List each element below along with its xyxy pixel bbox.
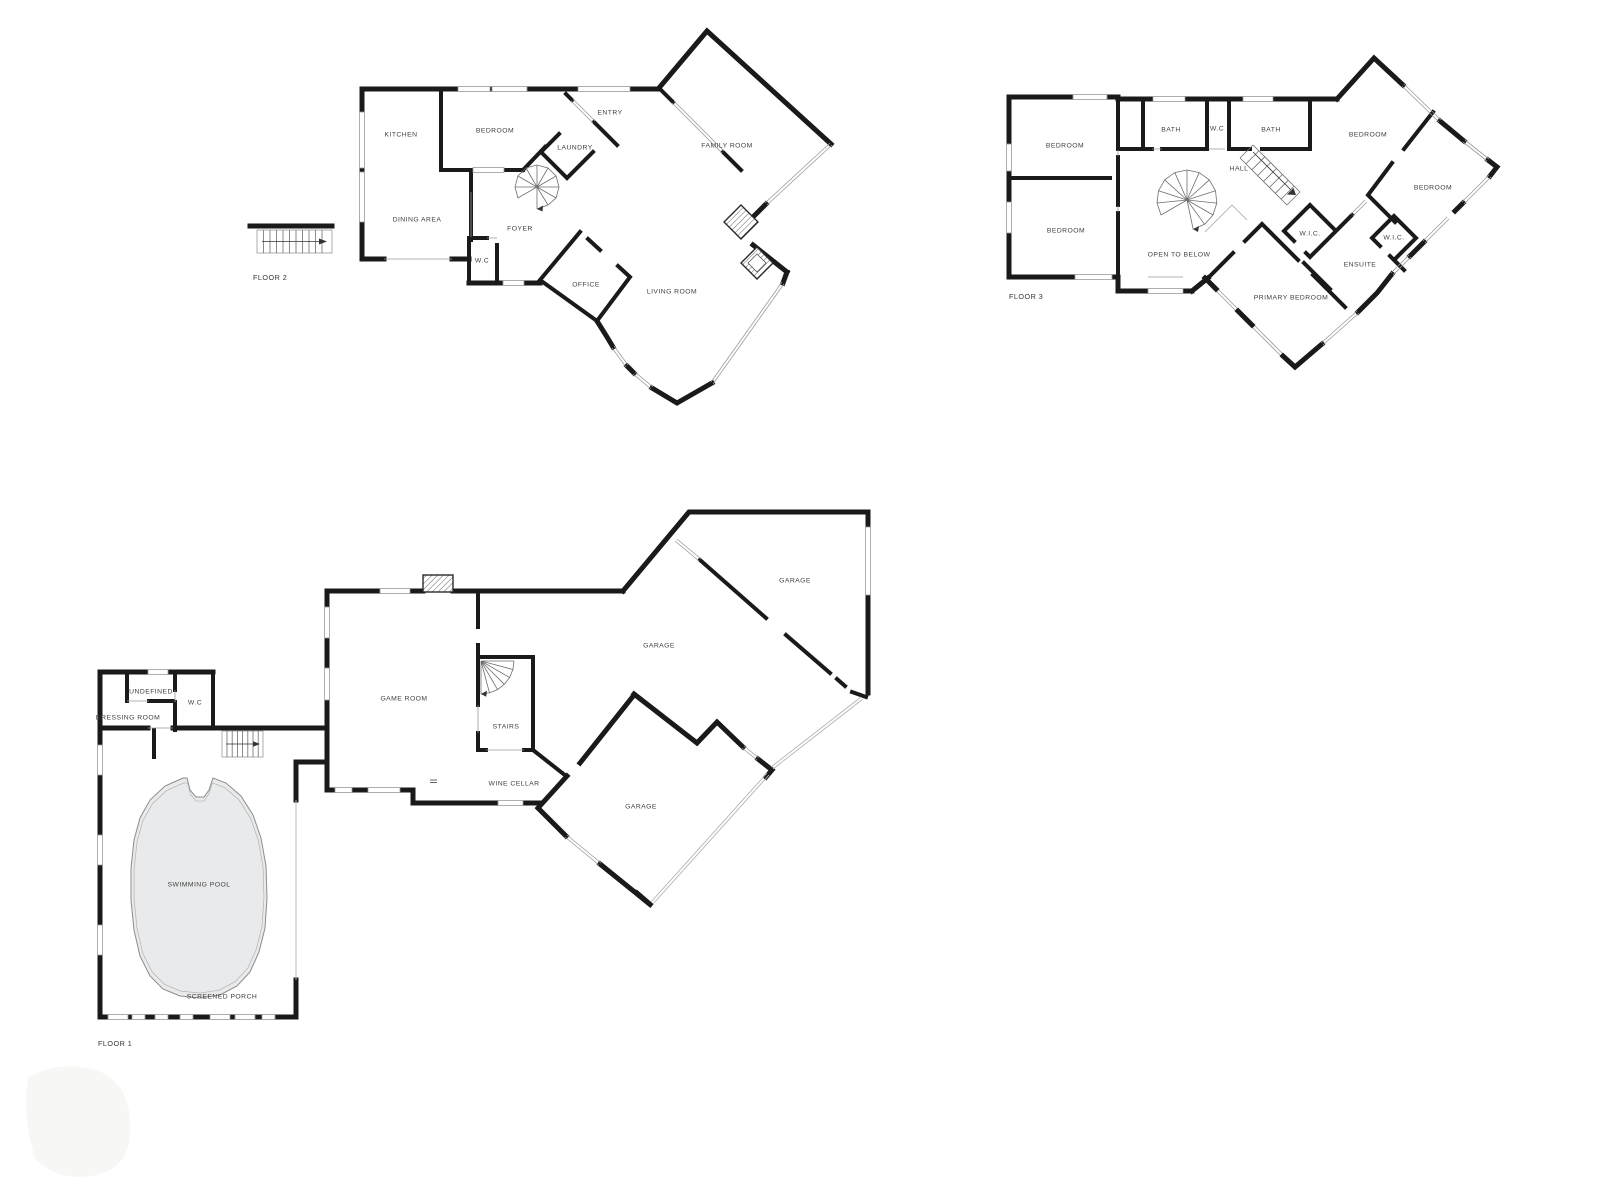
room-label-living-room: LIVING ROOM xyxy=(647,288,697,295)
room-label-bath-right: BATH xyxy=(1261,126,1280,133)
spiral-stair-f3-icon xyxy=(1157,170,1217,229)
floor-3-label: FLOOR 3 xyxy=(1009,292,1043,301)
room-label-bedroom-nw: BEDROOM xyxy=(1046,142,1084,149)
room-label-wc-f2: W.C xyxy=(475,257,489,264)
room-label-open-to-below: OPEN TO BELOW xyxy=(1148,251,1211,258)
room-label-dressing-room: DRESSING ROOM xyxy=(96,714,160,721)
room-label-ensuite: ENSUITE xyxy=(1344,261,1377,268)
room-label-bedroom-sw: BEDROOM xyxy=(1047,227,1085,234)
room-label-family-room: FAMILY ROOM xyxy=(701,142,753,149)
room-label-bedroom-ne: BEDROOM xyxy=(1349,131,1387,138)
floor-2-plan: KITCHEN BEDROOM ENTRY LAUNDRY FAMILY ROO… xyxy=(250,31,832,403)
room-label-office: OFFICE xyxy=(572,281,600,288)
room-label-primary-bedroom: PRIMARY BEDROOM xyxy=(1254,294,1328,301)
floor-3-plan: BEDROOM BATH W.C BATH BEDROOM HALL BEDRO… xyxy=(1007,58,1498,367)
hall-stair-icon xyxy=(1240,145,1300,205)
room-label-garage-center: GARAGE xyxy=(643,642,675,649)
room-label-laundry: LAUNDRY xyxy=(557,144,593,151)
floor-2-label: FLOOR 2 xyxy=(253,273,287,282)
room-label-wic-right: W.I.C. xyxy=(1383,234,1404,241)
room-label-garage-s: GARAGE xyxy=(625,803,657,810)
room-label-kitchen: KITCHEN xyxy=(385,131,418,138)
room-label-entry: ENTRY xyxy=(597,109,622,116)
room-label-garage-ne: GARAGE xyxy=(779,577,811,584)
floor-1-plan: UNDEFINED W.C DRESSING ROOM GAME ROOM ST… xyxy=(96,512,871,1048)
room-label-stairs: STAIRS xyxy=(493,723,520,730)
room-label-bedroom-e: BEDROOM xyxy=(1414,184,1452,191)
room-label-dining-area: DINING AREA xyxy=(393,216,442,223)
room-label-foyer: FOYER xyxy=(507,225,533,232)
room-label-wic-left: W.I.C. xyxy=(1299,230,1320,237)
stairs-fan-icon xyxy=(481,661,514,694)
watermark xyxy=(26,1066,130,1177)
room-label-wc-f3: W.C xyxy=(1210,125,1224,132)
room-label-bedroom-f2: BEDROOM xyxy=(476,127,514,134)
room-label-wine-cellar: WINE CELLAR xyxy=(488,780,539,787)
room-label-swimming-pool: SWIMMING POOL xyxy=(168,881,231,888)
room-label-wc-f1: W.C xyxy=(188,699,202,706)
floor-1-label: FLOOR 1 xyxy=(98,1039,132,1048)
room-label-hall: HALL xyxy=(1230,165,1249,172)
room-label-game-room: GAME ROOM xyxy=(380,695,427,702)
room-label-undefined: UNDEFINED xyxy=(129,688,173,695)
room-label-screened-porch: SCREENED PORCH xyxy=(187,993,258,1000)
room-label-bath-left: BATH xyxy=(1161,126,1180,133)
floor-plan-image: KITCHEN BEDROOM ENTRY LAUNDRY FAMILY ROO… xyxy=(0,0,1600,1200)
